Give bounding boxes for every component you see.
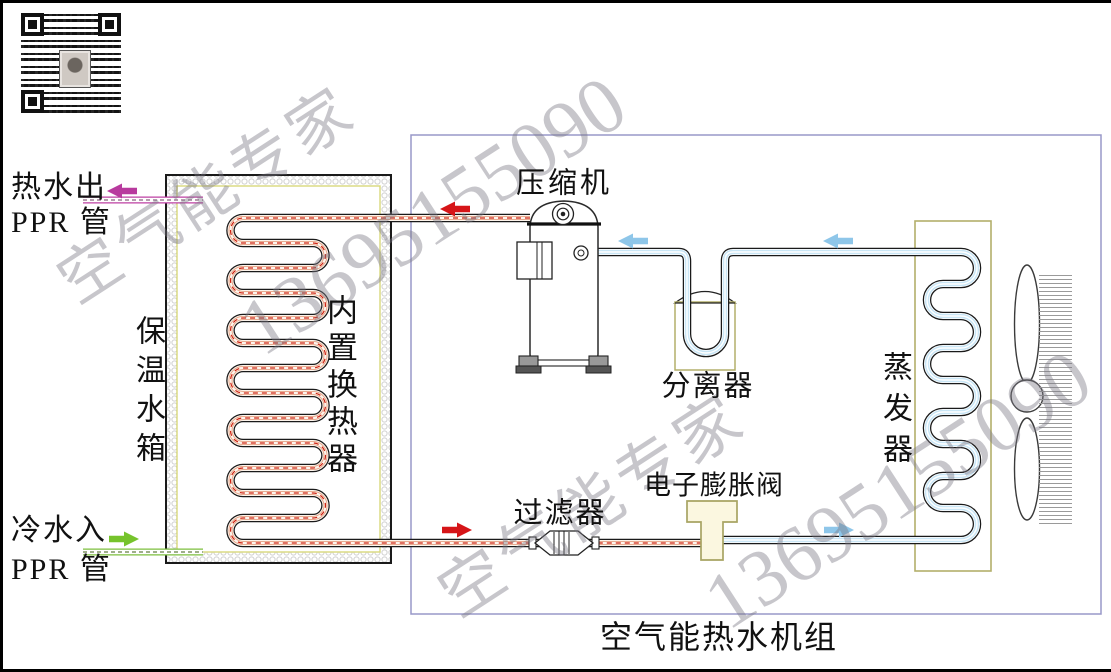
cold-water-in-arrow: [109, 532, 139, 547]
liquid-line-arrow: [442, 523, 472, 538]
qr-finder-icon: [98, 13, 121, 36]
expansion-valve: [687, 501, 737, 560]
qr-center-photo: [60, 51, 90, 87]
hot-water-ppr-label: PPR 管: [11, 208, 112, 238]
cold-water-in-label: 冷水入: [11, 516, 107, 546]
tank-label: 保温水箱: [132, 315, 162, 471]
qr-code: [21, 13, 121, 113]
qr-finder-icon: [21, 90, 44, 113]
hot-water-out-arrow: [107, 184, 137, 199]
filter: [529, 531, 599, 555]
suction-fitting: [574, 246, 588, 260]
suction-arrow-compressor: [618, 234, 648, 249]
compressor-terminal-box: [517, 242, 552, 279]
inner-coil-label: 内置换热器: [324, 294, 355, 479]
evaporator-label: 蒸发器: [879, 351, 909, 474]
qr-finder-icon: [21, 13, 44, 36]
schematic-drawing: [3, 3, 1111, 672]
compressor-label: 压缩机: [516, 170, 612, 199]
hot-water-out-label: 热水出: [11, 173, 107, 203]
unit-title: 空气能热水机组: [600, 621, 838, 653]
suction-arrow-evaporator: [823, 234, 853, 249]
cold-gas-arrow: [824, 523, 854, 538]
separator-label: 分离器: [661, 373, 754, 402]
compressor: [516, 201, 611, 373]
cold-water-ppr-label: PPR 管: [11, 555, 112, 585]
fan-fins: [1039, 275, 1072, 525]
expansion-valve-label: 电子膨胀阀: [644, 473, 784, 500]
filter-label: 过滤器: [513, 500, 606, 529]
diagram-canvas: 空气能专家 13695155090 空气能专家 13695155090 热水出 …: [0, 0, 1111, 672]
